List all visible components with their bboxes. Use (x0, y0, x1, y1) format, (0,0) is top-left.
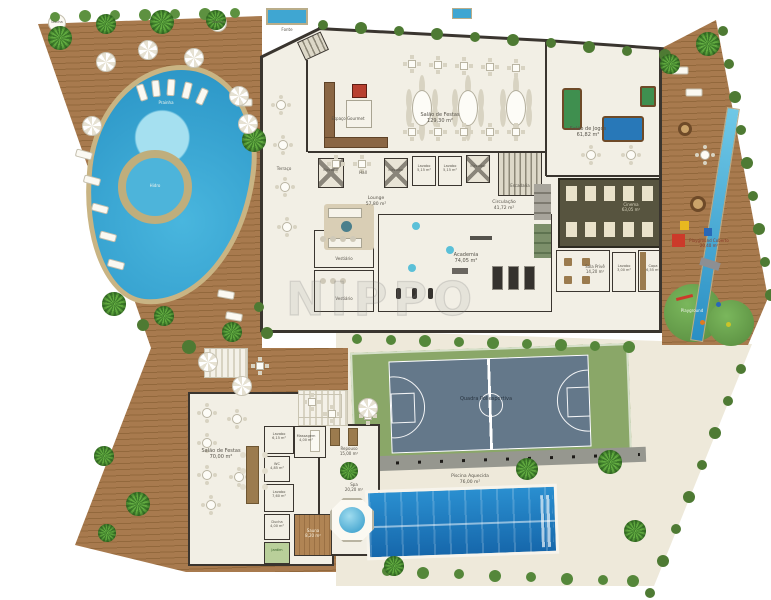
palm-tree-icon (126, 492, 150, 516)
rest-lounger-icon (348, 428, 358, 446)
round-table-icon (202, 408, 212, 418)
quadra-label: Quadra Poliesportiva (446, 396, 526, 402)
massagem-label: Massagem4,00 m² (292, 434, 320, 443)
round-table-icon (586, 150, 596, 160)
elevador-label: Elevador (382, 168, 410, 172)
court-surround (350, 343, 632, 465)
treadmill-icon (524, 266, 535, 290)
round-table-icon (282, 222, 292, 232)
water-feature (452, 8, 472, 19)
palm-tree-icon (598, 450, 622, 474)
academia-label: Academia74,05 m² (438, 252, 494, 265)
lavabo-label: Lavabo3,00 m² (611, 264, 637, 273)
elevator (318, 158, 344, 188)
palm-tree-icon (516, 458, 538, 480)
dining-table-icon (358, 160, 366, 168)
exercise-ball-icon (412, 222, 420, 230)
salao-jogos-label: Salão de Jogos61,82 m² (560, 126, 616, 139)
dining-table-icon (308, 398, 316, 406)
round-table-icon (202, 438, 212, 448)
kitchen-counter (324, 137, 388, 148)
palm-tree-icon (102, 292, 126, 316)
hedge-row-icon (352, 334, 362, 344)
palm-tree-icon (340, 462, 358, 480)
dining-table-icon (408, 60, 416, 68)
treadmill-icon (492, 266, 503, 290)
dining-table-icon (408, 128, 416, 136)
kitchen-counter (324, 82, 335, 144)
playground-equipment-icon (672, 234, 685, 247)
locker-stack (534, 184, 551, 220)
round-table-icon (234, 472, 244, 482)
dining-table-icon (328, 410, 336, 418)
hall-label: Hall (348, 170, 378, 175)
piscina-aquecida-label: Piscina Aquecida76,00 m² (428, 474, 512, 485)
playground-coberto-label: Playground Coberto20,40 m² (686, 238, 732, 248)
dining-table-icon (512, 64, 520, 72)
lavabo-label: Lavabo5,15 m² (411, 164, 437, 173)
palm-tree-icon (48, 26, 72, 50)
rest-lounger-icon (330, 428, 340, 446)
long-table-icon (246, 446, 259, 504)
elevador-label: Elevador (464, 164, 492, 168)
terraco-label: Terraço (264, 166, 304, 171)
umbrella-icon (238, 114, 258, 134)
spa-label: Spa20,20 m² (334, 482, 374, 492)
snooker-table-icon (562, 88, 582, 130)
jardim-label: Jardim (263, 548, 291, 552)
umbrella-icon (198, 352, 218, 372)
wet-deck-lounger-icon (151, 80, 161, 98)
palm-tree-icon (696, 32, 720, 56)
palm-tree-icon (660, 54, 680, 74)
wall (306, 60, 308, 152)
round-table-icon (276, 100, 286, 110)
wall (545, 42, 547, 176)
fonte-label: Fonte (272, 27, 302, 32)
lap-pool (365, 484, 559, 561)
playground-label: Playground (670, 308, 714, 313)
pool-steps (540, 495, 554, 547)
palm-tree-icon (96, 14, 116, 34)
treadmill-icon (508, 266, 519, 290)
umbrella-icon (358, 398, 378, 418)
sofa-icon (328, 238, 362, 248)
sun-lounger-icon (686, 89, 703, 97)
dining-table-icon (332, 160, 340, 168)
dining-table-icon (434, 128, 442, 136)
lounge-label: Lounge57,80 m² (354, 196, 398, 207)
watermark: NIPPO (286, 272, 478, 326)
umbrella-icon (232, 376, 252, 396)
round-table-icon (232, 414, 242, 424)
banquet-table-icon (506, 90, 526, 126)
elevator (384, 158, 408, 188)
lavabo-label: Lavabo7,60 m² (264, 490, 294, 499)
wall (546, 175, 662, 177)
hedge-row-icon (736, 364, 746, 374)
elevador-label: Elevador (316, 168, 346, 172)
key-area (566, 387, 591, 418)
bush-icon (254, 302, 264, 312)
spring-rider-icon (700, 320, 705, 325)
palm-tree-icon (94, 446, 114, 466)
vestiario-label: Vestiário (318, 256, 370, 261)
key-area (391, 393, 416, 424)
palm-tree-icon (222, 322, 242, 342)
wall (260, 56, 263, 332)
sala-prive-label: Sala Privê14,20 m² (578, 264, 612, 274)
hidro-label: Hidro (140, 183, 170, 188)
round-table-icon (202, 470, 212, 480)
hot-tub-water (339, 507, 365, 533)
palm-tree-icon (624, 520, 646, 542)
palm-tree-icon (150, 10, 174, 34)
fountain (266, 8, 308, 25)
salao-festas-label: Salão de Festas129,30 m² (408, 112, 472, 125)
dining-table-icon (486, 128, 494, 136)
hedge-row-icon (718, 26, 728, 36)
kitchen-island (346, 100, 372, 128)
round-table-icon (278, 140, 288, 150)
playground-equipment-icon (704, 228, 712, 236)
circulacao-label: Circulação41,72 m² (478, 200, 530, 211)
umbrella-icon (229, 86, 249, 106)
ducha-label: Ducha (207, 20, 229, 24)
ducha-label: Ducha (46, 20, 68, 24)
copa-label: Copa6,55 m² (643, 264, 663, 273)
multi-sport-court (388, 355, 591, 454)
cinema-seat-row (566, 186, 656, 201)
repouso-label: Repouso15,00 m² (326, 446, 372, 456)
lane-line (369, 520, 559, 529)
escadaria-label: Escadaria (500, 183, 540, 188)
sofa-icon (328, 208, 362, 218)
cinema-label: Cinema63,05 m² (608, 202, 654, 212)
dining-table-icon (512, 128, 520, 136)
palm-tree-icon (154, 306, 174, 326)
prainha-label: Prainha (146, 100, 186, 105)
dining-table-icon (486, 63, 494, 71)
fixture-row-icon (320, 236, 326, 242)
playground-lawn (708, 300, 754, 346)
wall (262, 330, 662, 333)
sauna-label: Sauna8,20 m² (296, 528, 330, 538)
elevator (466, 155, 490, 183)
bbq-grill-icon (690, 196, 706, 212)
barbell-icon (470, 236, 492, 240)
salao-festas2-label: Salão de Festas70,00 m² (196, 448, 246, 461)
hedge-row-icon (318, 20, 328, 30)
coffee-table-icon (341, 221, 352, 232)
wc-label: WC4,85 m² (263, 462, 291, 471)
palm-tree-icon (98, 524, 116, 542)
round-table-icon (280, 182, 290, 192)
lavabo-label: Lavabo5,15 m² (437, 164, 463, 173)
site-plan: Prainha Hidro Ducha Ducha Fonte Terra (0, 0, 771, 600)
wet-deck-lounger-icon (166, 79, 175, 97)
cafe-table-icon (564, 258, 572, 266)
wall (659, 48, 662, 332)
dining-table-icon (460, 128, 468, 136)
round-table-icon (700, 150, 710, 160)
round-table-icon (626, 150, 636, 160)
umbrella-icon (138, 40, 158, 60)
ducha-room-label: Ducha4,00 m² (263, 520, 291, 529)
palm-tree-icon (384, 556, 404, 576)
umbrella-icon (184, 48, 204, 68)
dining-table-icon (256, 362, 264, 370)
exercise-mat-stack (534, 224, 551, 258)
espaco-gourmet-label: Espaço Gourmet (326, 116, 370, 121)
umbrella-icon (82, 116, 102, 136)
round-table-icon (206, 500, 216, 510)
dining-table-icon (434, 61, 442, 69)
lavabo-label: Lavabo6,15 m² (264, 432, 294, 441)
stove-icon (352, 84, 367, 98)
bbq-grill-icon (678, 122, 692, 136)
mini-table-icon (640, 86, 656, 107)
umbrella-icon (96, 52, 116, 72)
dining-table-icon (460, 62, 468, 70)
garden-nook (264, 542, 290, 564)
cinema-seat-row (566, 222, 656, 237)
playground-equipment-icon (680, 221, 689, 230)
